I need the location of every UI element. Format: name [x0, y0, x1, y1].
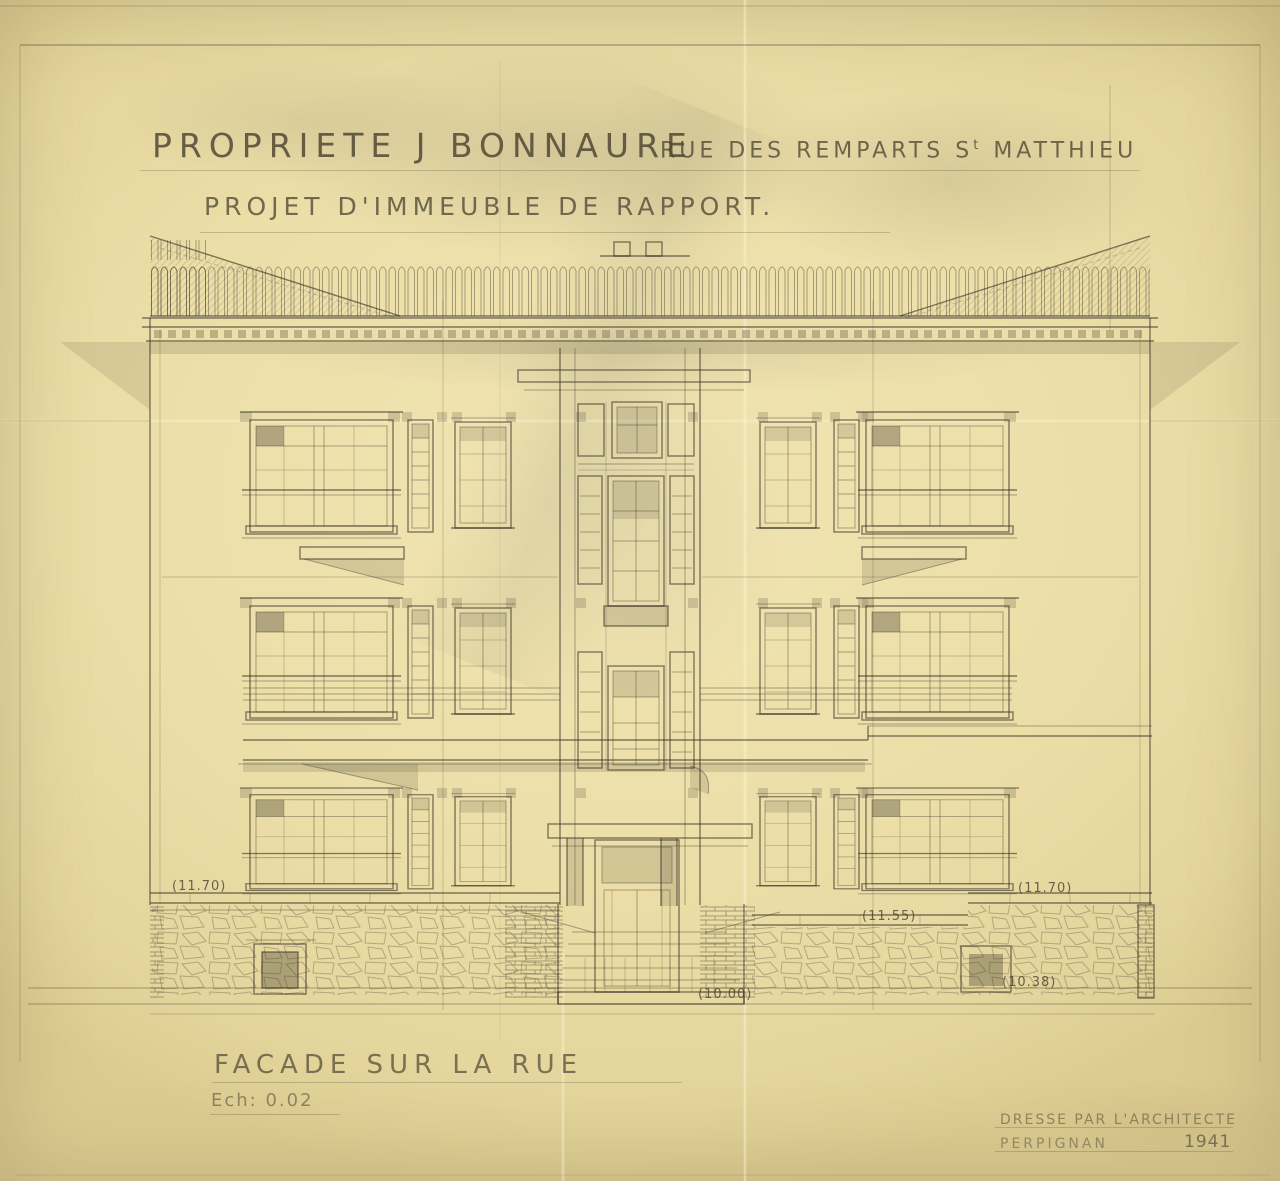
title-property: PROPRIETE J BONNAURE	[152, 126, 694, 165]
title-street-superscript: t	[973, 138, 982, 153]
central-bay	[518, 370, 750, 770]
drawing-sheet: (11.70) (11.55) (11.70) (10.00) (10.38) …	[0, 0, 1280, 1181]
title-project: PROJET D'IMMEUBLE DE RAPPORT.	[204, 192, 775, 221]
title-street-pre: RUE DES REMPARTS S	[660, 138, 973, 163]
dim-entrance-width: (10.00)	[698, 987, 752, 1002]
dim-right-parapet: (11.70)	[1018, 881, 1072, 896]
caption-facade: FACADE SUR LA RUE	[214, 1050, 583, 1080]
border-frame	[0, 6, 1280, 1175]
title-street-post: MATTHIEU	[982, 138, 1137, 163]
dim-right-base: (10.38)	[1002, 975, 1056, 990]
sill-corbels	[300, 547, 966, 585]
title-street: RUE DES REMPARTS St MATTHIEU	[660, 138, 1137, 163]
cornice	[60, 318, 1240, 410]
stone-base	[28, 893, 1252, 1014]
stamp-year: 1941	[1184, 1132, 1231, 1152]
facade-elevation-drawing: (11.70) (11.55) (11.70) (10.00) (10.38)	[0, 0, 1280, 1181]
stamp-city: PERPIGNAN	[1000, 1136, 1108, 1152]
roof-parapet	[150, 236, 1150, 318]
scale-note: Ech: 0.02	[211, 1090, 314, 1111]
dim-left-parapet: (11.70)	[172, 879, 226, 894]
stamp-architect-line: DRESSE PAR L'ARCHITECTE	[1000, 1112, 1237, 1128]
dim-mid-right-parapet: (11.55)	[862, 909, 916, 924]
balconies	[238, 688, 1152, 794]
